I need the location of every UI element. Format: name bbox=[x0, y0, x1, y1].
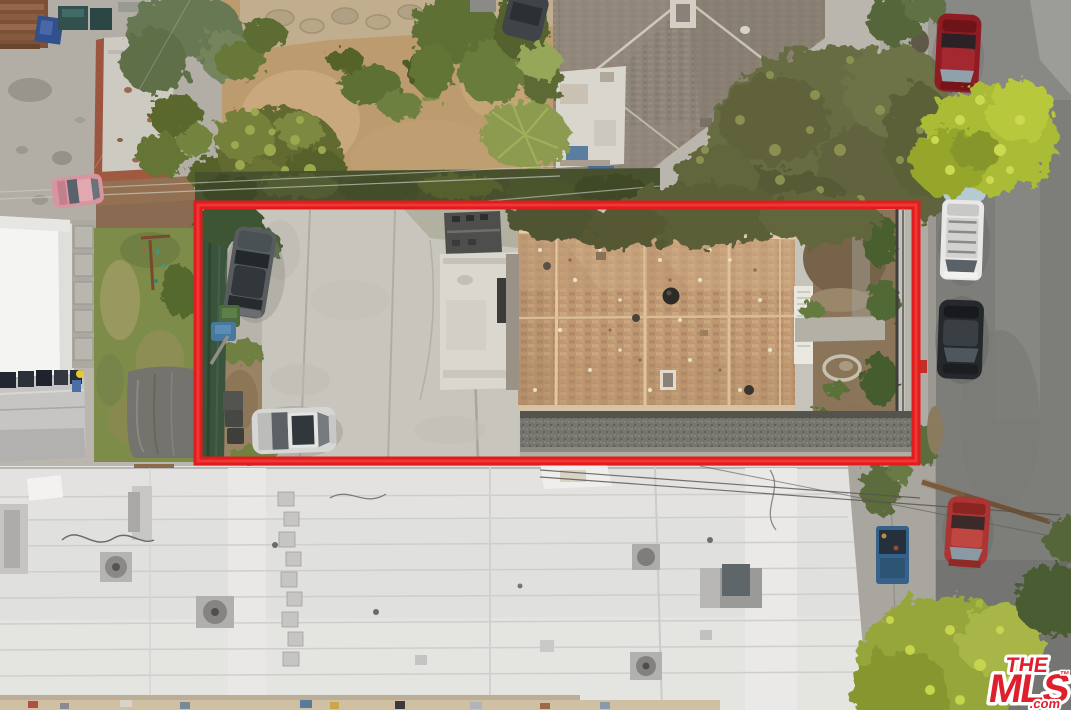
svg-text:.com: .com bbox=[1029, 696, 1062, 710]
svg-text:™: ™ bbox=[1058, 670, 1070, 681]
